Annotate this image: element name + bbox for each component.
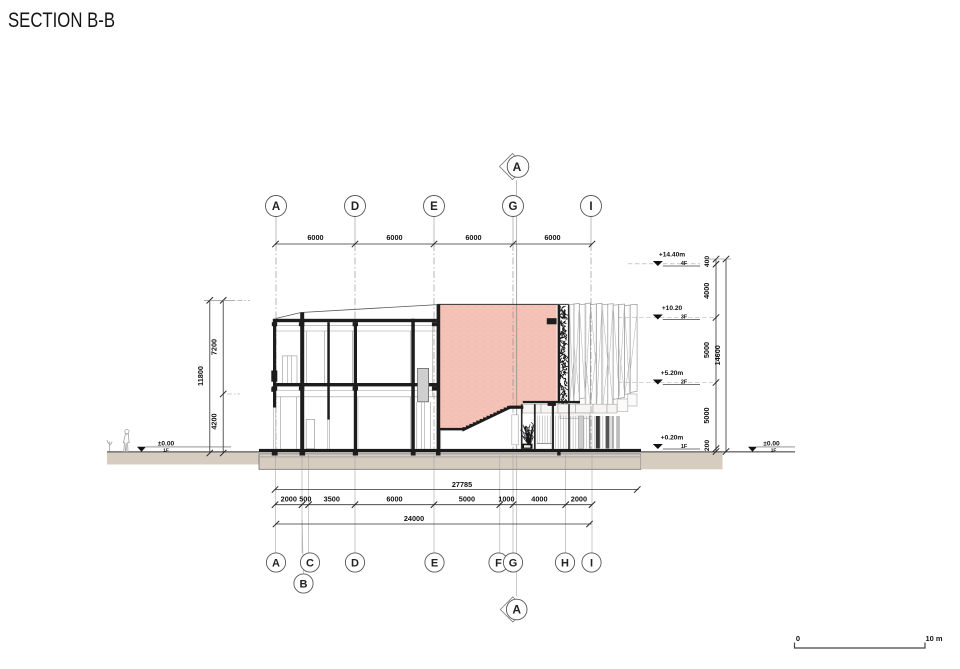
svg-text:5000: 5000 bbox=[459, 494, 475, 503]
svg-text:H: H bbox=[561, 558, 569, 570]
svg-text:1F: 1F bbox=[771, 447, 777, 453]
svg-text:±0.00: ±0.00 bbox=[158, 440, 175, 447]
svg-text:2000: 2000 bbox=[571, 494, 587, 503]
svg-text:0: 0 bbox=[796, 634, 800, 643]
svg-text:200: 200 bbox=[704, 440, 711, 452]
svg-text:11800: 11800 bbox=[196, 366, 205, 386]
svg-text:6000: 6000 bbox=[544, 233, 560, 242]
svg-text:+5.20m: +5.20m bbox=[661, 370, 684, 377]
svg-text:14600: 14600 bbox=[713, 345, 722, 365]
svg-text:A: A bbox=[272, 558, 280, 570]
svg-text:4000: 4000 bbox=[531, 494, 547, 503]
svg-text:2000: 2000 bbox=[281, 494, 297, 503]
svg-text:+0.20m: +0.20m bbox=[661, 435, 684, 442]
svg-text:E: E bbox=[430, 201, 438, 213]
svg-text:6000: 6000 bbox=[307, 233, 323, 242]
svg-text:E: E bbox=[431, 558, 438, 570]
svg-text:D: D bbox=[351, 558, 359, 570]
svg-text:+14.40m: +14.40m bbox=[659, 252, 685, 259]
svg-text:24000: 24000 bbox=[404, 514, 424, 523]
svg-text:+10.20: +10.20 bbox=[662, 305, 683, 312]
svg-text:400: 400 bbox=[704, 256, 711, 268]
svg-text:A: A bbox=[513, 160, 522, 174]
svg-text:6000: 6000 bbox=[465, 233, 481, 242]
svg-text:A: A bbox=[512, 603, 521, 617]
svg-text:4F: 4F bbox=[681, 261, 688, 267]
svg-text:A: A bbox=[272, 201, 280, 213]
svg-text:SECTION B-B: SECTION B-B bbox=[8, 8, 115, 32]
svg-text:3F: 3F bbox=[681, 315, 688, 321]
svg-text:I: I bbox=[590, 558, 593, 570]
svg-text:B: B bbox=[300, 579, 308, 591]
svg-text:4200: 4200 bbox=[210, 413, 219, 429]
svg-text:C: C bbox=[306, 558, 314, 570]
svg-text:1F: 1F bbox=[163, 447, 169, 453]
svg-text:F: F bbox=[495, 558, 502, 570]
svg-text:D: D bbox=[351, 201, 359, 213]
svg-text:2F: 2F bbox=[681, 380, 688, 386]
svg-text:5000: 5000 bbox=[702, 407, 711, 423]
svg-text:G: G bbox=[509, 201, 518, 213]
svg-text:27785: 27785 bbox=[452, 480, 472, 489]
svg-text:G: G bbox=[509, 558, 518, 570]
svg-text:3500: 3500 bbox=[324, 494, 340, 503]
svg-text:6000: 6000 bbox=[386, 233, 402, 242]
svg-text:5000: 5000 bbox=[702, 342, 711, 358]
svg-text:I: I bbox=[589, 201, 592, 213]
svg-text:±0.00: ±0.00 bbox=[763, 440, 780, 447]
svg-text:4000: 4000 bbox=[702, 283, 711, 299]
svg-text:1F: 1F bbox=[681, 444, 688, 450]
svg-text:6000: 6000 bbox=[386, 494, 402, 503]
svg-text:500: 500 bbox=[299, 494, 311, 503]
svg-text:1000: 1000 bbox=[498, 494, 514, 503]
svg-text:7200: 7200 bbox=[210, 339, 219, 355]
svg-text:10 m: 10 m bbox=[925, 634, 942, 643]
